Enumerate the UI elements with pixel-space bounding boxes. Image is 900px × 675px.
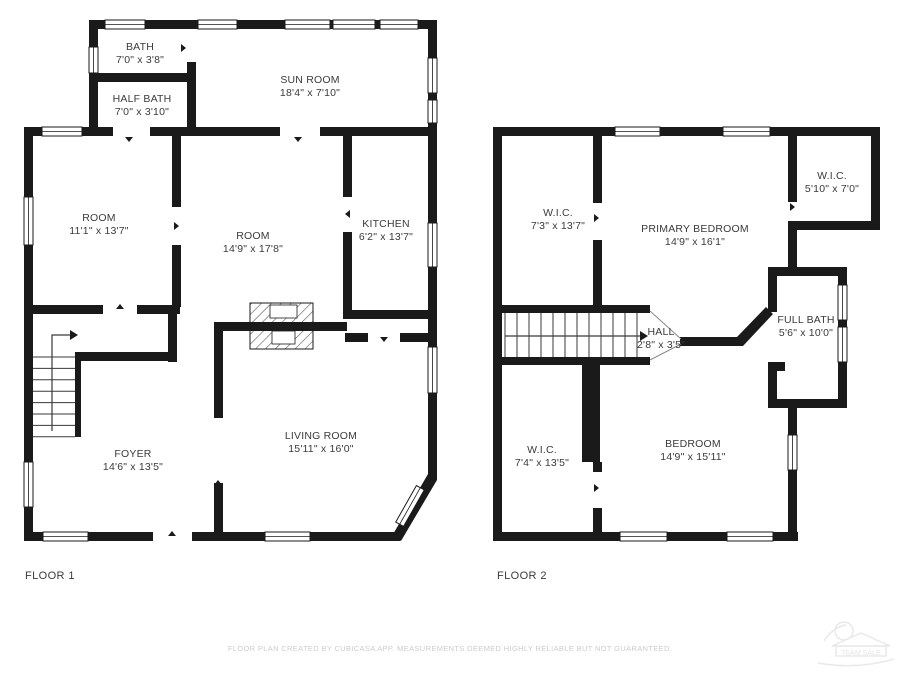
room-name: BEDROOM: [660, 438, 725, 451]
room-label-wic-lower-left: W.I.C. 7'4" x 13'5": [515, 444, 569, 470]
room-dims: 5'6" x 10'0": [777, 327, 834, 340]
room-dims: 2'8" x 3'5": [637, 339, 685, 352]
room-name: SUN ROOM: [280, 74, 340, 87]
room-dims: 7'3" x 13'7": [531, 220, 585, 233]
room-label-foyer: FOYER 14'6" x 13'5": [103, 448, 163, 474]
floor1-plan: [24, 20, 437, 541]
room-dims: 7'4" x 13'5": [515, 457, 569, 470]
room-label-kitchen: KITCHEN 6'2" x 13'7": [359, 218, 413, 244]
fireplace: [250, 303, 313, 349]
room-dims: 14'6" x 13'5": [103, 461, 163, 474]
room-label-primary-bedroom: PRIMARY BEDROOM 14'9" x 16'1": [641, 223, 749, 249]
room-dims: 14'9" x 16'1": [641, 236, 749, 249]
room-dims: 14'9" x 15'11": [660, 451, 725, 464]
room-dims: 18'4" x 7'10": [280, 87, 340, 100]
room-name: FULL BATH: [777, 314, 834, 327]
room-name: ROOM: [223, 230, 283, 243]
room-name: HALL: [637, 326, 685, 339]
room-name: PRIMARY BEDROOM: [641, 223, 749, 236]
room-name: LIVING ROOM: [285, 430, 357, 443]
room-dims: 7'0" x 3'10": [113, 106, 172, 119]
room-name: W.I.C.: [515, 444, 569, 457]
room-label-wic-top-right: W.I.C. 5'10" x 7'0": [805, 170, 859, 196]
floor1-label: FLOOR 1: [25, 570, 75, 582]
room-name: W.I.C.: [805, 170, 859, 183]
room-label-wic-upper-left: W.I.C. 7'3" x 13'7": [531, 207, 585, 233]
room-label-hall: HALL 2'8" x 3'5": [637, 326, 685, 352]
floor1-walls: [24, 20, 437, 541]
room-dims: 11'1" x 13'7": [69, 225, 128, 238]
room-label-room-center: ROOM 14'9" x 17'8": [223, 230, 283, 256]
floorplan-page: TEAM SALE BATH 7'0" x 3'8" HALF BATH 7'0…: [0, 0, 900, 675]
room-label-bath: BATH 7'0" x 3'8": [116, 41, 164, 67]
room-label-sun-room: SUN ROOM 18'4" x 7'10": [280, 74, 340, 100]
room-name: KITCHEN: [359, 218, 413, 231]
room-dims: 15'11" x 16'0": [285, 443, 357, 456]
room-name: BATH: [116, 41, 164, 54]
stairs-up-arrow-icon: [70, 330, 78, 340]
room-name: W.I.C.: [531, 207, 585, 220]
floor2-label: FLOOR 2: [497, 570, 547, 582]
disclaimer-text: FLOOR PLAN CREATED BY CUBICASA APP. MEAS…: [0, 644, 900, 653]
room-label-bedroom: BEDROOM 14'9" x 15'11": [660, 438, 725, 464]
room-dims: 5'10" x 7'0": [805, 183, 859, 196]
room-label-room-left: ROOM 11'1" x 13'7": [69, 212, 128, 238]
floor1-stairs: [33, 330, 78, 437]
room-label-half-bath: HALF BATH 7'0" x 3'10": [113, 93, 172, 119]
room-name: ROOM: [69, 212, 128, 225]
room-name: FOYER: [103, 448, 163, 461]
room-name: HALF BATH: [113, 93, 172, 106]
floor1-windows: [24, 20, 437, 541]
room-label-living-room: LIVING ROOM 15'11" x 16'0": [285, 430, 357, 456]
room-dims: 6'2" x 13'7": [359, 231, 413, 244]
room-dims: 14'9" x 17'8": [223, 243, 283, 256]
room-label-full-bath: FULL BATH 5'6" x 10'0": [777, 314, 834, 340]
room-dims: 7'0" x 3'8": [116, 54, 164, 67]
